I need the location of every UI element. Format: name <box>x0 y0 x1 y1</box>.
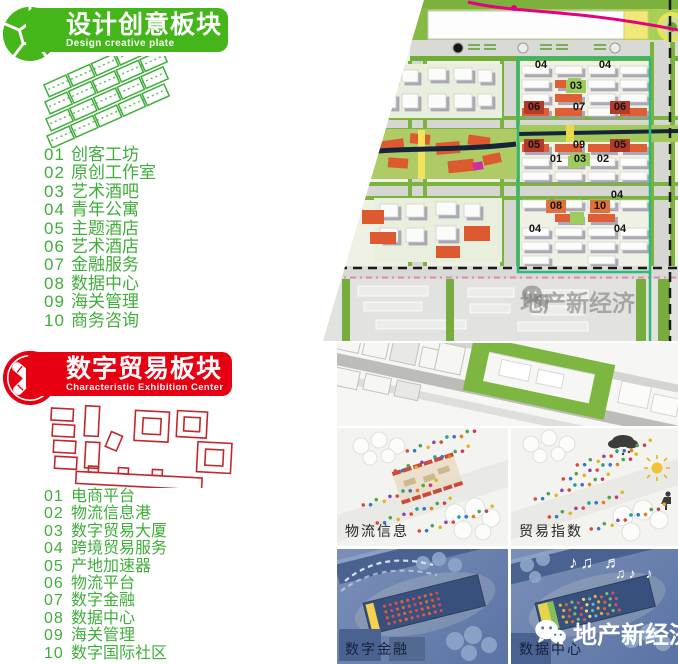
trade-item-list: 01电商平台 02物流信息港 03数字贸易大厦 04跨境贸易服务 05产地加速器… <box>44 488 167 662</box>
block-label: 04 <box>610 223 630 236</box>
block-label: 09 <box>569 139 589 152</box>
design-title: 设计创意板块 <box>66 12 220 38</box>
block-label: 03 <box>570 153 590 166</box>
map-watermark: 地产新经济 <box>520 284 635 318</box>
infographic-canvas: 设计创意板块 Design creative plate 01创客工坊 02原创… <box>0 0 678 664</box>
list-item: 09海关管理 <box>44 293 156 311</box>
design-section-header: 设计创意板块 Design creative plate <box>26 8 228 52</box>
block-label: 02 <box>593 153 613 166</box>
block-label: 04 <box>595 59 615 72</box>
render-grid: 物流信息 <box>337 343 678 664</box>
block-label: 05 <box>610 139 630 152</box>
render-panel-trade-index: 贸易指数 <box>511 428 678 546</box>
block-label: 05 <box>524 139 544 152</box>
list-item: 10商务咨询 <box>44 312 156 330</box>
list-item: 02物流信息港 <box>44 505 167 522</box>
axon-overview-render <box>337 343 678 426</box>
render-panel-digital-finance: 数字金融 <box>337 549 508 664</box>
list-item: 02原创工作室 <box>44 164 156 182</box>
list-item: 03艺术酒吧 <box>44 183 156 201</box>
block-label: 04 <box>531 59 551 72</box>
master-plan-map: 04 04 03 06 07 06 05 09 05 01 03 02 04 0… <box>318 0 678 341</box>
render-panel-logistics: 物流信息 <box>337 428 508 546</box>
list-item: 07金融服务 <box>44 256 156 274</box>
trade-title: 数字贸易板块 <box>66 356 224 382</box>
list-item: 10数字国际社区 <box>44 645 167 662</box>
block-label: 04 <box>607 189 627 202</box>
list-item: 08数据中心 <box>44 610 167 627</box>
panel-label: 物流信息 <box>345 521 409 541</box>
panel-label: 贸易指数 <box>519 521 583 541</box>
list-item: 05主题酒店 <box>44 220 156 238</box>
design-subtitle: Design creative plate <box>66 38 220 49</box>
list-item: 07数字金融 <box>44 592 167 609</box>
trade-subtitle: Characteristic Exhibition Center <box>66 382 224 393</box>
panel-label: 数据中心 <box>519 639 583 659</box>
block-label: 03 <box>566 80 586 93</box>
music-notes: ♫♪ ♪ <box>615 565 655 581</box>
block-label: 10 <box>590 200 610 213</box>
block-label: 06 <box>524 101 544 114</box>
list-item: 09海关管理 <box>44 627 167 644</box>
panel-label: 数字金融 <box>345 639 409 659</box>
list-item: 06艺术酒店 <box>44 238 156 256</box>
trade-axon-sketch <box>48 398 238 488</box>
list-item: 01电商平台 <box>44 488 167 505</box>
block-label: 07 <box>569 101 589 114</box>
list-item: 08数据中心 <box>44 275 156 293</box>
list-item: 01创客工坊 <box>44 146 156 164</box>
list-item: 04跨境贸易服务 <box>44 540 167 557</box>
block-label: 06 <box>610 101 630 114</box>
design-axon-sketch <box>35 56 195 148</box>
trade-section-header: 数字贸易板块 Characteristic Exhibition Center <box>26 352 232 396</box>
list-item: 06物流平台 <box>44 575 167 592</box>
list-item: 04青年公寓 <box>44 201 156 219</box>
block-label: 08 <box>546 200 566 213</box>
wechat-icon <box>520 284 550 310</box>
design-item-list: 01创客工坊 02原创工作室 03艺术酒吧 04青年公寓 05主题酒店 06艺术… <box>44 146 156 330</box>
block-label: 04 <box>525 223 545 236</box>
block-label: 01 <box>546 153 566 166</box>
render-panel-data-center: ♪♫ ♬ ♫♪ ♪ 地产新经济 数据中心 <box>511 549 678 664</box>
list-item: 05产地加速器 <box>44 558 167 575</box>
list-item: 03数字贸易大厦 <box>44 523 167 540</box>
axon-overview-graphic <box>337 343 678 426</box>
